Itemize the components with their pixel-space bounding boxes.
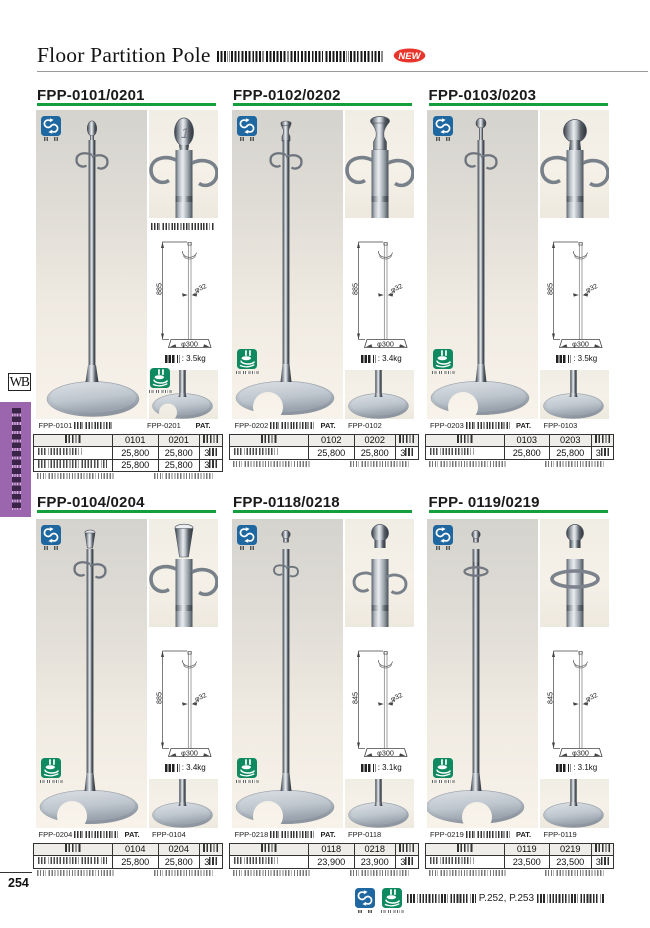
svg-text:φ32: φ32 <box>193 692 207 703</box>
svg-text:φ32: φ32 <box>389 692 403 703</box>
svg-text:φ300: φ300 <box>181 748 198 757</box>
svg-text:885: 885 <box>350 283 359 295</box>
svg-text:NEW: NEW <box>398 51 421 62</box>
svg-text:1: 1 <box>180 125 188 142</box>
svg-text:φ32: φ32 <box>585 692 599 703</box>
svg-text:885: 885 <box>154 692 163 704</box>
svg-text:φ300: φ300 <box>181 339 198 348</box>
svg-text:φ32: φ32 <box>193 283 207 294</box>
svg-text:φ300: φ300 <box>572 339 589 348</box>
svg-text:φ32: φ32 <box>389 283 403 294</box>
svg-text:845: 845 <box>350 692 359 704</box>
svg-text:φ300: φ300 <box>572 748 589 757</box>
svg-text:885: 885 <box>154 283 163 295</box>
svg-text:885: 885 <box>546 283 555 295</box>
svg-text:φ32: φ32 <box>585 283 599 294</box>
svg-text:845: 845 <box>546 692 555 704</box>
svg-text:φ300: φ300 <box>377 748 394 757</box>
svg-text:φ300: φ300 <box>377 339 394 348</box>
